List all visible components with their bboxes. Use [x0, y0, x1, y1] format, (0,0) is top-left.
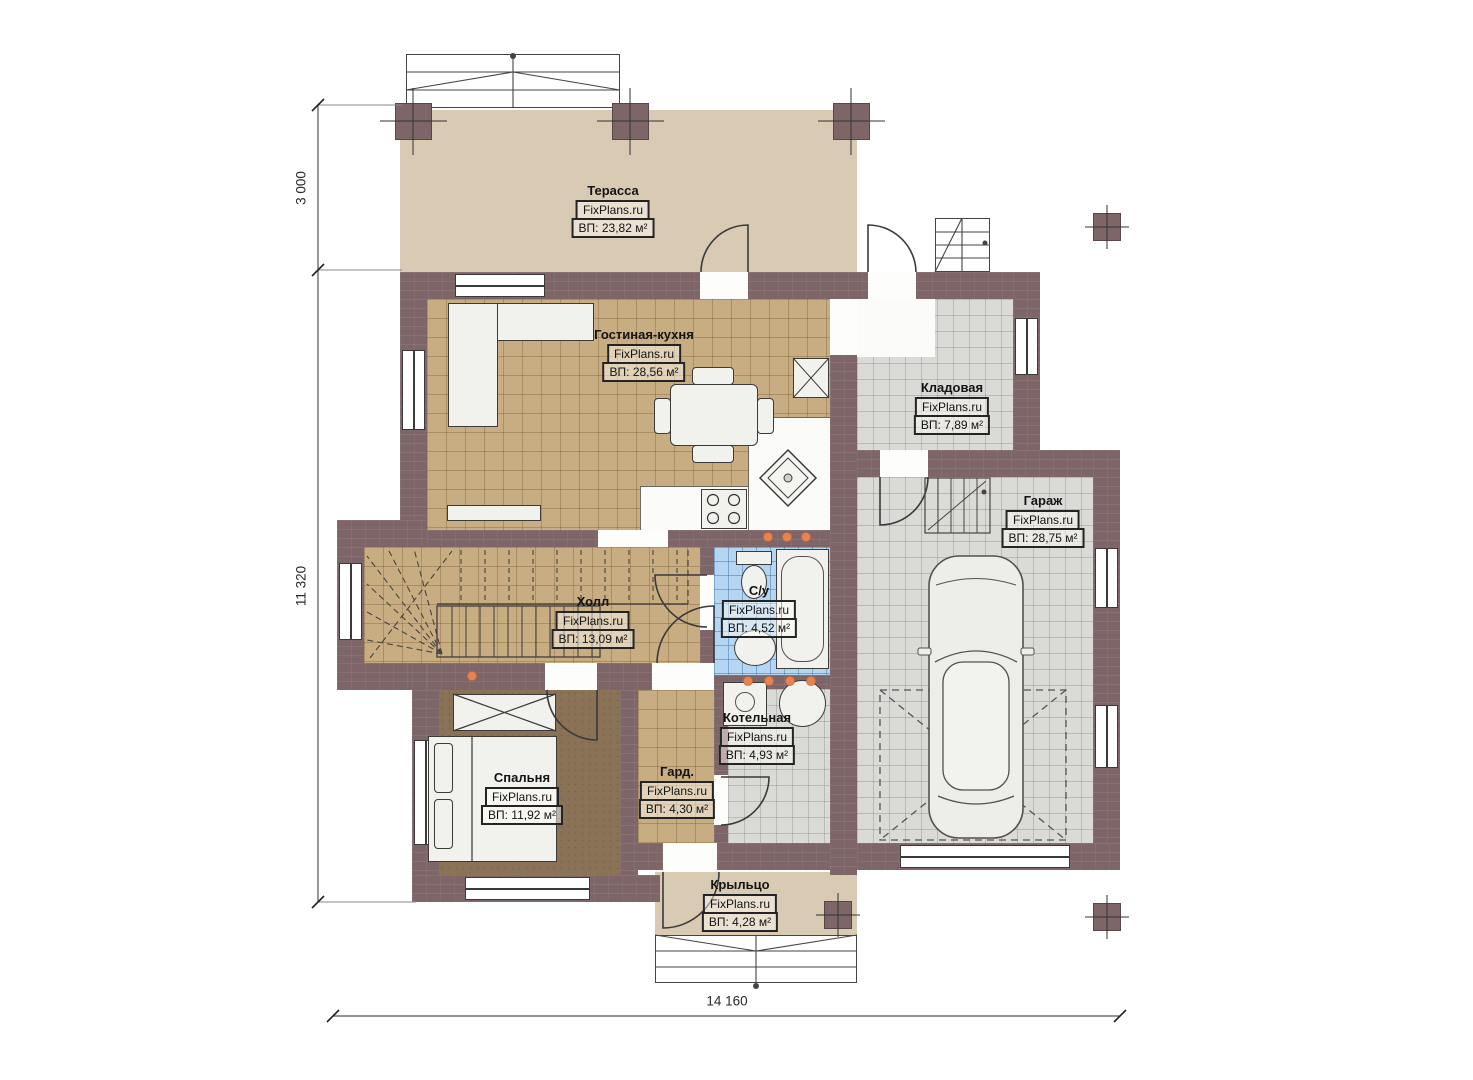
terrace-steps	[406, 54, 620, 108]
room-name: Кладовая	[921, 380, 983, 395]
brand-box: FixPlans.ru	[915, 397, 989, 417]
brand-box: FixPlans.ru	[703, 894, 777, 914]
room-label-hall: Холл FixPlans.ru ВП: 13,09 м²	[552, 594, 635, 649]
room-name: Гараж	[1024, 493, 1063, 508]
wall-bottom-mid	[620, 843, 857, 870]
porch-column	[824, 901, 852, 929]
brand-box: FixPlans.ru	[720, 727, 794, 747]
room-name: Спальня	[494, 770, 550, 785]
window-storage-right	[1015, 318, 1038, 375]
area-box: ВП: 11,92 м²	[481, 805, 563, 825]
room-label-boiler: Котельная FixPlans.ru ВП: 4,93 м²	[719, 710, 795, 765]
area-box: ВП: 4,28 м²	[702, 912, 778, 932]
room-label-bathroom: С/у FixPlans.ru ВП: 4,52 м²	[721, 583, 797, 638]
room-label-bedroom: Спальня FixPlans.ru ВП: 11,92 м²	[481, 770, 563, 825]
chair-right	[757, 398, 774, 434]
brand-box: FixPlans.ru	[556, 611, 630, 631]
entry-floor	[857, 299, 935, 357]
room-name: Крыльцо	[710, 877, 769, 892]
brand-box: FixPlans.ru	[576, 200, 650, 220]
door-gap-terrace	[700, 272, 748, 299]
door-gap-kitchen-entry	[830, 299, 857, 355]
tv-cabinet	[447, 505, 541, 521]
terrace-column-right	[833, 103, 870, 140]
wall-center-spine	[830, 299, 857, 875]
bed-pillow-2	[434, 799, 453, 849]
door-gap-bathroom	[700, 575, 714, 630]
area-box: ВП: 4,93 м²	[719, 745, 795, 765]
room-label-living-kitchen: Гостиная-кухня FixPlans.ru ВП: 28,56 м²	[594, 327, 694, 382]
bed-pillow-1	[434, 743, 453, 793]
door-gap-bedroom	[545, 663, 597, 690]
room-label-terrace: Терасса FixPlans.ru ВП: 23,82 м²	[572, 183, 655, 238]
area-box: ВП: 23,82 м²	[572, 218, 655, 238]
brand-box: FixPlans.ru	[640, 781, 714, 801]
porch-steps	[655, 935, 857, 983]
window-garage-right-2	[1095, 705, 1118, 768]
terrace-column-left	[395, 103, 432, 140]
wardrobe-unit	[453, 694, 556, 731]
chair-bottom	[692, 445, 734, 463]
window-living-top	[455, 274, 545, 297]
area-box: ВП: 28,56 м²	[603, 362, 686, 382]
area-box: ВП: 4,52 м²	[721, 618, 797, 638]
area-box: ВП: 7,89 м²	[914, 415, 990, 435]
room-label-porch: Крыльцо FixPlans.ru ВП: 4,28 м²	[702, 877, 778, 932]
wall-bedroom-wardrobe	[620, 690, 638, 875]
window-bedroom-bottom	[465, 877, 590, 900]
room-name: Гостиная-кухня	[594, 327, 694, 342]
entry-door-arc	[868, 225, 916, 272]
toilet-tank	[736, 551, 772, 565]
wall-garage-right	[1093, 450, 1120, 870]
chair-top	[692, 367, 734, 385]
brand-box: FixPlans.ru	[485, 787, 559, 807]
door-gap-porch	[663, 843, 717, 870]
floor-plan-canvas: Терасса FixPlans.ru ВП: 23,82 м² Гостина…	[0, 0, 1473, 1080]
window-stairbay-left	[339, 563, 362, 640]
brand-box: FixPlans.ru	[722, 600, 796, 620]
dimension-house-depth: 11 320	[294, 566, 309, 606]
room-name: Котельная	[723, 710, 791, 725]
room-label-wardrobe: Гард. FixPlans.ru ВП: 4,30 м²	[639, 764, 715, 819]
window-garage-right-1	[1095, 548, 1118, 608]
room-name: Терасса	[587, 183, 639, 198]
brand-box: FixPlans.ru	[1006, 510, 1080, 530]
door-gap-entry	[868, 272, 916, 299]
room-label-garage: Гараж FixPlans.ru ВП: 28,75 м²	[1002, 493, 1085, 548]
room-name: Гард.	[660, 764, 694, 779]
chair-left	[654, 398, 671, 434]
area-box: ВП: 4,30 м²	[639, 799, 715, 819]
area-box: ВП: 28,75 м²	[1002, 528, 1085, 548]
kitchen-corner-counter	[748, 417, 832, 532]
window-living-left	[402, 350, 425, 430]
room-name: Холл	[577, 594, 610, 609]
door-gap-hall-corridor	[652, 663, 714, 690]
entry-steps	[935, 218, 990, 272]
area-box: ВП: 13,09 м²	[552, 629, 635, 649]
door-gap-garage	[880, 450, 928, 477]
hall-floor	[364, 547, 700, 663]
door-gap-wardrobe	[714, 775, 728, 825]
room-label-storage: Кладовая FixPlans.ru ВП: 7,89 м²	[914, 380, 990, 435]
garage-door-opening	[900, 845, 1070, 868]
boiler-equipment-dial	[735, 692, 755, 712]
brand-box: FixPlans.ru	[607, 344, 681, 364]
dimension-house-width: 14 160	[706, 994, 747, 1009]
site-column-bottom-right	[1093, 903, 1121, 931]
room-name: С/у	[749, 583, 769, 598]
terrace-column-mid	[612, 103, 649, 140]
dimension-terrace-depth: 3 000	[294, 171, 309, 205]
dining-table	[670, 384, 758, 446]
kitchen-appliance	[793, 358, 829, 398]
stove	[701, 489, 747, 529]
site-column-top-right	[1093, 213, 1121, 241]
door-gap-living-hall	[598, 530, 668, 547]
sofa-chaise	[448, 303, 498, 427]
